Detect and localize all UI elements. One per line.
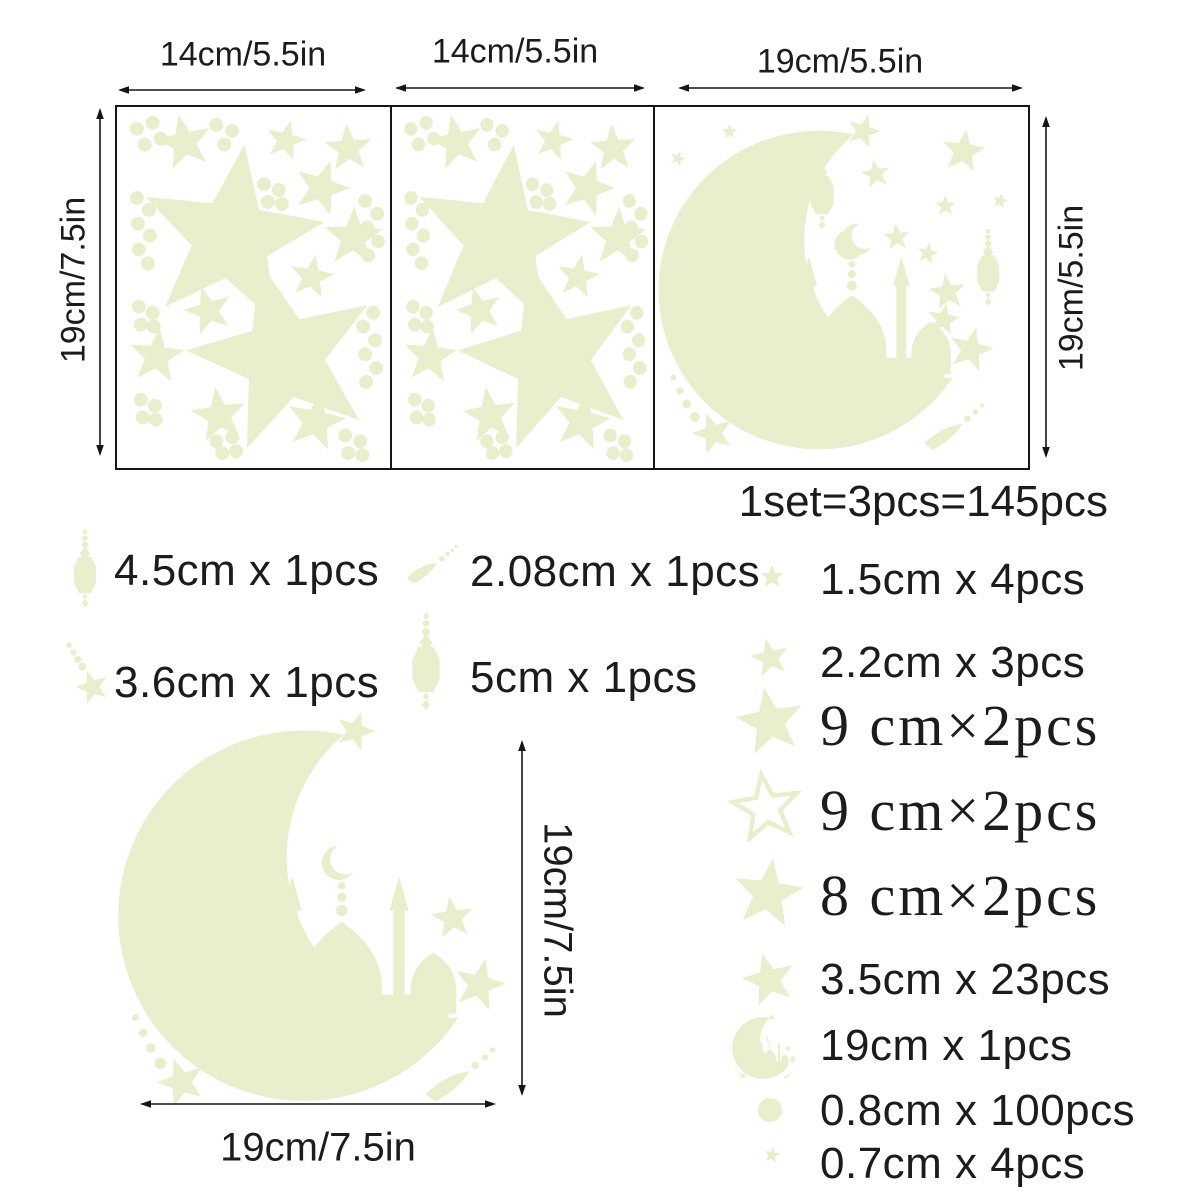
lantern-icon [404,612,448,712]
moon-height-label: 19cm/7.5in [535,822,580,1018]
sheet-height-left-label: 19cm/7.5in [55,197,94,363]
spec-label: 2.08cm x 1pcs [470,547,760,597]
spec-label: 0.7cm x 4pcs [820,1139,1085,1189]
spec-label: 9 cm×2pcs [820,777,1100,844]
dimension-arrow-sheet-height-right [1040,116,1052,458]
spec-label: 3.6cm x 1pcs [114,658,379,708]
lantern-icon [68,526,102,612]
dimension-arrow-moon-height [516,740,528,1096]
product-infographic: 14cm/5.5in 14cm/5.5in 19cm/5.5in 19cm/7.… [0,0,1200,1200]
star-sheet-graphic [117,107,390,468]
sheet-stars-1 [117,107,390,468]
moon-mosque-sheet-graphic [655,107,1028,468]
large-moon-mosque-graphic [105,712,525,1113]
star-icon [740,951,798,1009]
star-icon [730,856,806,932]
star-trail-icon [58,638,116,714]
moon-mosque-icon [730,1014,800,1081]
sheet3-width-label: 19cm/5.5in [757,43,923,82]
star-icon [759,564,785,590]
sticker-sheets [115,105,1030,470]
sheet1-width-label: 14cm/5.5in [160,36,326,75]
spec-label: 4.5cm x 1pcs [114,546,379,596]
spec-label: 3.5cm x 23pcs [820,955,1110,1005]
dimension-arrow-sheet1-width [118,84,366,96]
star-icon [749,637,791,679]
comet-icon [397,538,463,590]
spec-label: 19cm x 1pcs [820,1021,1072,1071]
dimension-arrow-sheet3-width [678,82,1023,94]
spec-label: 9 cm×2pcs [820,692,1100,759]
sheet-moon-mosque [653,107,1028,468]
star-sheet-graphic [392,107,653,468]
sheet2-width-label: 14cm/5.5in [432,33,598,72]
star-icon [763,1146,781,1164]
dot-icon [757,1097,783,1123]
moon-width-label: 19cm/7.5in [220,1126,416,1171]
star-icon [733,685,807,759]
spec-label: 1.5cm x 4pcs [820,555,1085,605]
spec-label: 0.8cm x 100pcs [820,1086,1135,1136]
dimension-arrow-moon-width [140,1098,496,1110]
sheet-stars-2 [390,107,653,468]
dimension-arrow-sheet2-width [395,82,645,94]
set-count-text: 1set=3pcs=145pcs [739,477,1108,527]
dimension-arrow-sheet-height-left [94,108,106,456]
star-outline-icon [727,769,805,847]
sheet-height-right-label: 19cm/5.5in [1053,205,1092,371]
spec-label: 5cm x 1pcs [470,653,698,703]
spec-label: 2.2cm x 3pcs [820,638,1085,688]
spec-label: 8 cm×2pcs [820,862,1100,929]
